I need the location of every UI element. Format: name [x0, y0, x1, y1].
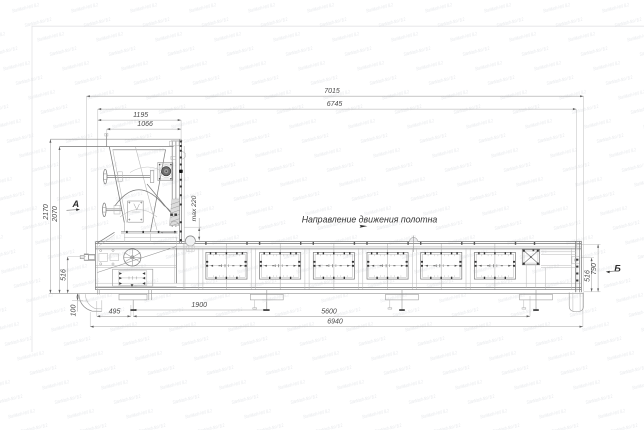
svg-text:100: 100 [70, 305, 77, 317]
svg-text:5600: 5600 [321, 308, 337, 315]
svg-text:1066: 1066 [137, 121, 153, 128]
svg-text:Направление движения полотна: Направление движения полотна [302, 214, 438, 224]
svg-text:Б: Б [614, 264, 621, 274]
svg-text:495: 495 [109, 308, 121, 315]
svg-text:6940: 6940 [327, 319, 343, 326]
svg-text:516: 516 [60, 269, 67, 281]
svg-text:А: А [71, 199, 79, 209]
svg-text:790: 790 [591, 263, 598, 275]
svg-text:7015: 7015 [324, 88, 340, 95]
svg-text:6745: 6745 [327, 101, 343, 108]
svg-text:2170: 2170 [43, 204, 50, 221]
svg-text:1195: 1195 [133, 112, 148, 119]
svg-text:2070: 2070 [52, 206, 59, 223]
svg-text:1900: 1900 [191, 302, 207, 309]
svg-text:max 220: max 220 [191, 195, 198, 221]
